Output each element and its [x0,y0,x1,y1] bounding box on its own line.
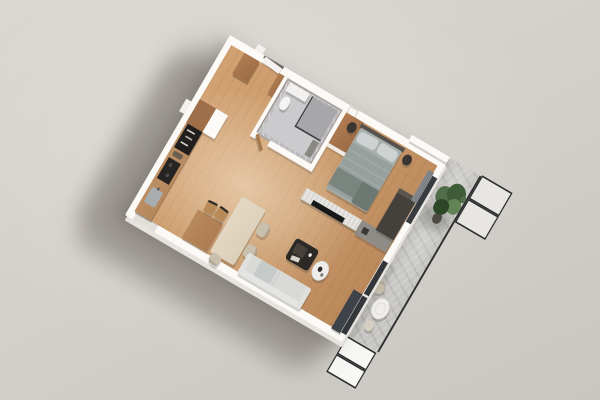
burner [165,173,170,178]
page-background [0,0,600,400]
shelf-items [180,141,188,147]
decor [317,266,324,273]
decor [361,227,370,236]
shelf-items [187,129,195,135]
shelf-items [185,136,192,141]
burner [168,163,173,168]
decor [319,272,324,277]
faucet [156,187,160,191]
cup [308,253,313,258]
